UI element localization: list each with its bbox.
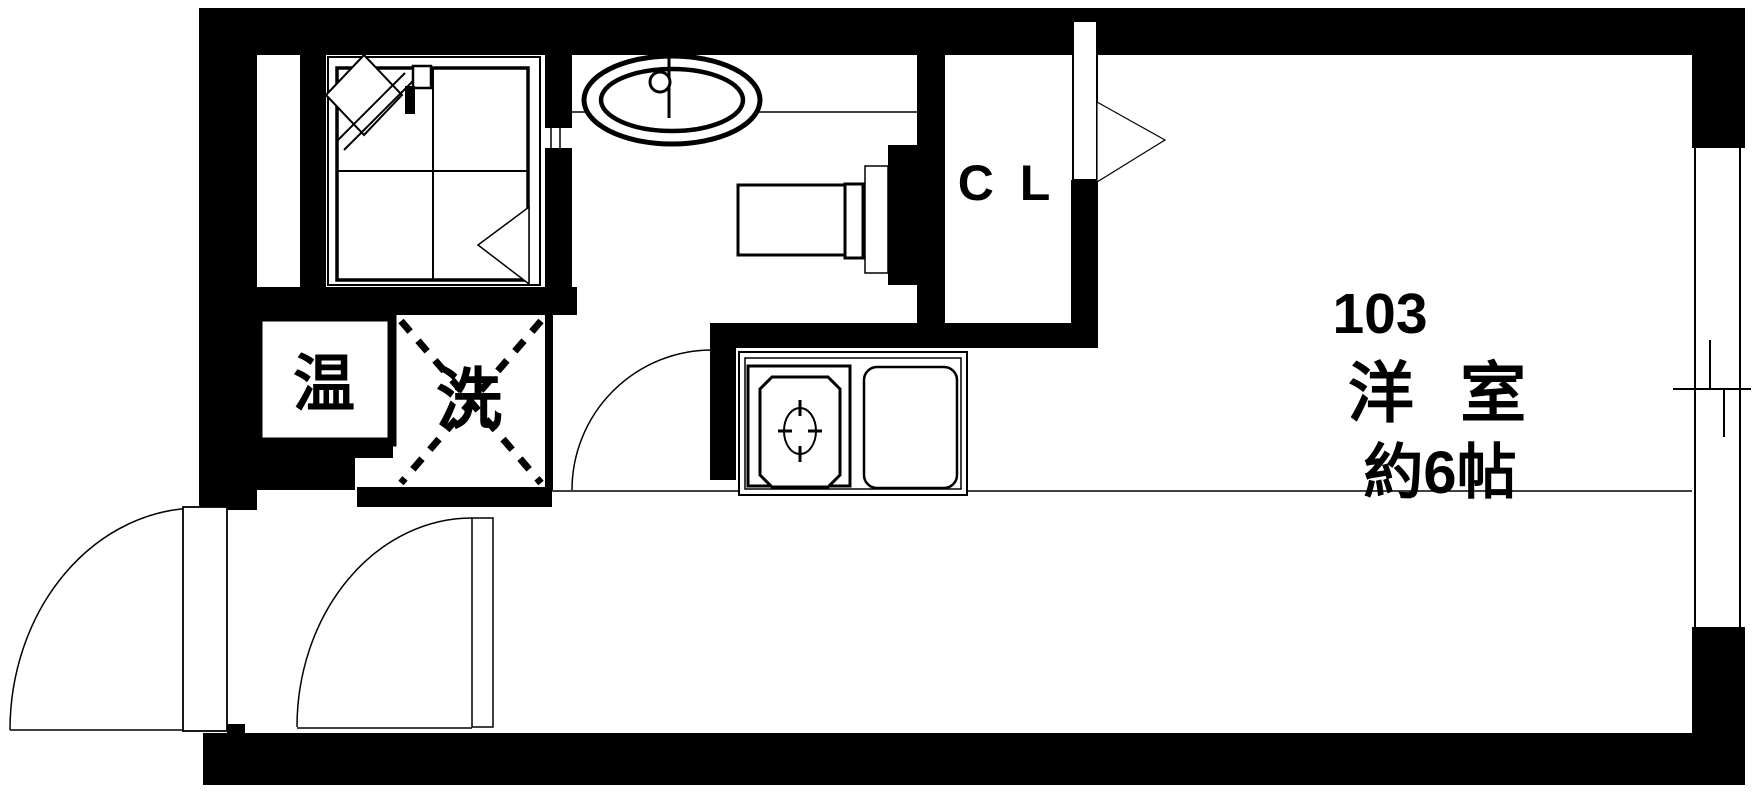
wall-below-laundry — [357, 487, 552, 507]
wall-below-bath — [203, 287, 577, 315]
bath-faucet — [413, 66, 431, 88]
room-size-label: 約6帖 — [1363, 439, 1516, 506]
wall-bath-right-lower — [545, 148, 572, 287]
washer-label: 洗 — [436, 362, 502, 436]
bath-faucet-pipe — [405, 86, 415, 114]
unit-number-label: 103 — [1332, 282, 1427, 346]
wall-laundry-right — [545, 315, 553, 490]
room-type-label: 洋 室 — [1348, 356, 1540, 430]
entrance-door-stop — [227, 724, 245, 733]
closet-label: C L — [958, 155, 1057, 211]
wall-kitchen-closet-top — [710, 323, 1098, 348]
wall-toilet-closet-thick — [888, 145, 917, 285]
closet-door-leaf — [1073, 21, 1097, 180]
wall-bath-left — [300, 55, 326, 287]
wall-left — [199, 55, 257, 510]
toilet-bowl — [738, 185, 845, 255]
wall-closet-right — [1071, 180, 1098, 348]
wall-top — [199, 8, 1745, 55]
hall-door-leaf — [472, 518, 493, 727]
floor-plan-drawing: 温 洗 C L 103 洋 室 約6帖 — [0, 0, 1753, 795]
wall-bath-right-upper — [545, 55, 572, 128]
wall-right-upper — [1692, 55, 1745, 148]
wall-below-heater-2 — [247, 458, 355, 490]
entrance-door-leaf — [183, 507, 227, 731]
toilet-seat-hinge — [845, 184, 863, 258]
kitchen-counter — [739, 352, 967, 495]
floor-plan: 温 洗 C L 103 洋 室 約6帖 — [0, 0, 1753, 795]
kitchen-drainboard — [864, 367, 957, 488]
washbasin-faucet-head — [650, 72, 670, 92]
water-heater-label: 温 — [293, 350, 355, 419]
toilet-tank — [865, 166, 888, 273]
washbasin-faucet-handle — [654, 41, 678, 52]
wall-toilet-closet-thin — [917, 55, 945, 323]
wall-right-lower — [1692, 627, 1745, 737]
wall-bottom — [203, 733, 1745, 785]
